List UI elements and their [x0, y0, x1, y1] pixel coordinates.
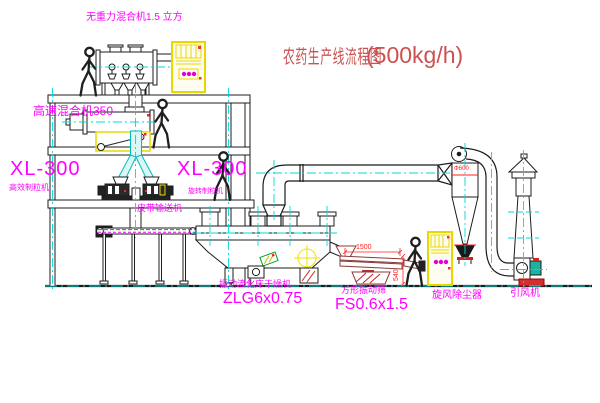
label-granulator-right-model: XL-300 [177, 159, 248, 179]
label-sieve-model: FS0.6x1.5 [335, 297, 408, 313]
process-flow-diagram: 农药生产线流程图 (500kg/h) 无重力混合机1.5 立方 高速混合机350… [0, 0, 600, 403]
person-top-floor [81, 48, 97, 96]
diagram-title-capacity: (500kg/h) [366, 44, 463, 67]
dimension-cyclone-inlet: Φ600 [454, 166, 469, 172]
belt-conveyor [96, 226, 196, 284]
gravity-free-mixer [96, 45, 172, 95]
person-level2 [154, 100, 170, 148]
label-granulator-left-model: XL-300 [10, 159, 81, 179]
collecting-hopper [132, 188, 140, 200]
label-gravity-mixer: 无重力混合机1.5 立方 [86, 13, 183, 23]
label-granulator-right-name: 旋转制粒机 [188, 188, 223, 195]
dryer-pedestal [300, 268, 318, 283]
control-cabinet-top [172, 42, 205, 92]
label-dryer-model: ZLG6x0.75 [223, 291, 302, 307]
label-belt-conveyor: 皮带输送机 [137, 204, 182, 213]
induced-draft-fan [514, 258, 544, 286]
dimension-sieve-height: 540 [393, 269, 400, 281]
conveyor-legs [100, 234, 188, 284]
label-sieve-name: 方形振动筛 [341, 286, 386, 295]
cyclone-inlet-cone [438, 163, 452, 185]
control-cabinet-right [428, 232, 452, 285]
exhaust-stack [509, 154, 537, 258]
mixer-discharge-cones [111, 83, 149, 95]
label-dryer-name: 振动流化床干燥机 [219, 280, 291, 289]
label-fan: 引风机 [510, 289, 540, 299]
label-high-speed-mixer: 高速混合机350 [33, 105, 113, 117]
label-granulator-left-name: 高效制粒机 [9, 184, 49, 192]
granulator-right [139, 177, 173, 200]
granulator-left [98, 177, 133, 200]
dryer-motor [248, 266, 264, 278]
dimension-sieve-length: 1500 [356, 244, 372, 251]
label-cyclone: 旋风除尘器 [432, 291, 482, 301]
